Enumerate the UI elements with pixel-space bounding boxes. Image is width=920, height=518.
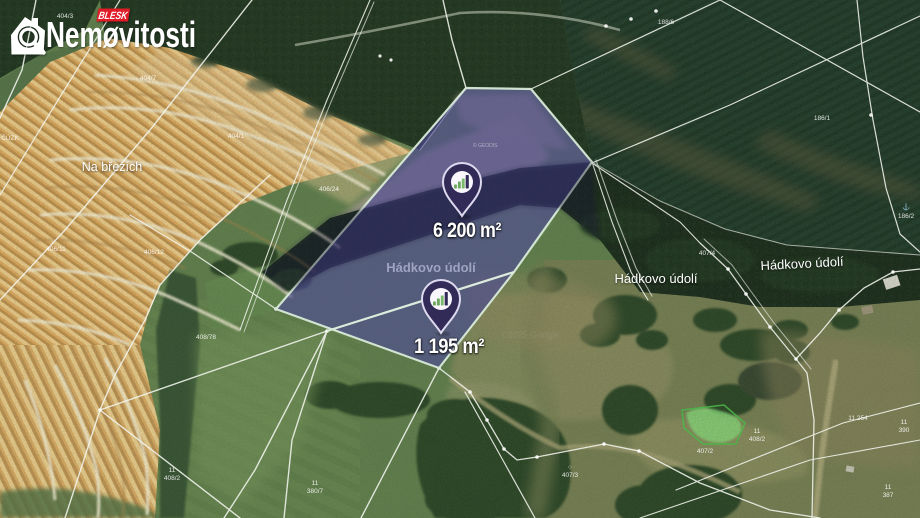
svg-text:407/4: 407/4 (699, 250, 716, 257)
svg-text:6 200 m²: 6 200 m² (433, 219, 501, 242)
svg-text:408/2: 408/2 (164, 475, 181, 482)
svg-text:Hádkovo údolí: Hádkovo údolí (614, 271, 697, 286)
svg-text:© GEODIS: © GEODIS (473, 142, 498, 149)
svg-text:407/3: 407/3 (562, 472, 579, 479)
svg-text:406/24: 406/24 (319, 186, 339, 193)
svg-text:406/11: 406/11 (46, 246, 66, 253)
svg-text:408/78: 408/78 (196, 334, 216, 341)
svg-text:406/12: 406/12 (144, 249, 164, 256)
svg-text:408/2: 408/2 (749, 436, 766, 443)
svg-text:390: 390 (899, 427, 910, 434)
svg-text:11: 11 (312, 480, 319, 487)
svg-text:404/1: 404/1 (228, 133, 245, 140)
svg-text:Hádkovo údolí: Hádkovo údolí (386, 260, 476, 275)
svg-text:Nemøvitosti: Nemøvitosti (46, 14, 196, 55)
svg-text:186/2: 186/2 (898, 213, 915, 220)
svg-text:186/1: 186/1 (814, 115, 831, 122)
svg-text:188/6: 188/6 (658, 19, 675, 26)
svg-text:©2025 Google: ©2025 Google (501, 330, 559, 340)
svg-text:11: 11 (901, 419, 908, 426)
svg-text:11 254: 11 254 (848, 415, 868, 422)
svg-text:11: 11 (885, 484, 892, 491)
svg-text:⚓: ⚓ (902, 203, 910, 211)
svg-text:Na březích: Na březích (82, 160, 142, 174)
svg-text:380/7: 380/7 (307, 488, 324, 495)
svg-text:404/7: 404/7 (140, 75, 157, 82)
svg-text:407/2: 407/2 (697, 448, 714, 455)
svg-text:11: 11 (754, 428, 761, 435)
svg-text:○: ○ (568, 464, 572, 471)
svg-text:11: 11 (169, 467, 176, 474)
svg-text:ČÚZK: ČÚZK (1, 133, 19, 142)
svg-text:387: 387 (883, 492, 894, 499)
svg-text:1 195 m²: 1 195 m² (414, 335, 484, 358)
